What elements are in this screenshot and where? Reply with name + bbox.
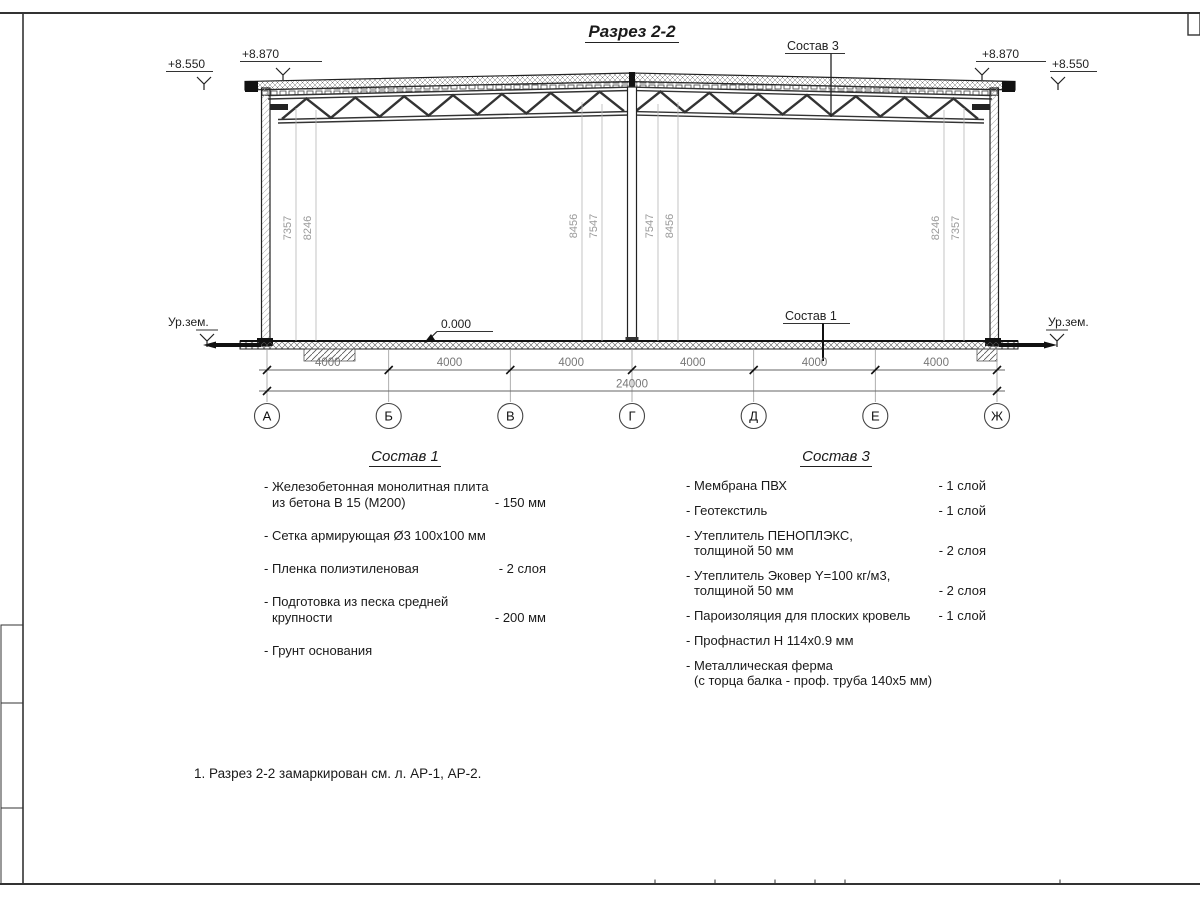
height-dim: 8456 <box>664 214 676 238</box>
bay-dim: 4000 <box>802 357 828 369</box>
wall-left <box>262 88 271 346</box>
list-item: - Утеплитель ПЕНОПЛЭКС,толщиной 50 мм - … <box>686 528 986 558</box>
height-dim: 7357 <box>282 216 294 240</box>
height-dim: 8456 <box>568 214 580 238</box>
bay-dim: 4000 <box>437 357 463 369</box>
footing-right <box>977 349 997 361</box>
height-dim: 8246 <box>302 216 314 240</box>
list-item: - Пленка полиэтиленовая - 2 слоя <box>264 561 546 577</box>
truss-web <box>282 92 624 119</box>
elevation-marker-icon <box>975 68 989 80</box>
truss-bearing-right <box>972 104 990 110</box>
list-item: - Грунт основания <box>264 643 546 659</box>
zero-level-label: 0.000 <box>441 317 471 331</box>
floor-slab <box>240 341 1018 349</box>
height-dim: 7357 <box>950 216 962 240</box>
list-item: - Геотекстиль - 1 слой <box>686 503 986 518</box>
list-item: - Металлическая ферма(с торца балка - пр… <box>686 658 986 688</box>
roof-edge-beam-right <box>1002 81 1015 92</box>
ridge-joint <box>629 72 635 87</box>
elevation-marker-icon <box>276 68 290 80</box>
sostav3-leader-label: Состав 3 <box>787 39 839 53</box>
axis-letter: Б <box>384 409 393 424</box>
list-item: - Подготовка из песка среднейкрупности -… <box>264 594 546 626</box>
height-dim: 8246 <box>930 216 942 240</box>
bay-dim: 4000 <box>923 357 949 369</box>
wall-right <box>990 88 999 346</box>
axis-letter: Д <box>749 409 758 424</box>
list-item: - Железобетонная монолитная плитаиз бето… <box>264 479 546 511</box>
height-dimension-labels: 7357 8246 8456 7547 7547 8456 8246 7357 <box>282 214 962 240</box>
sostav1-list: Состав 1 - Железобетонная монолитная пли… <box>264 449 546 676</box>
list-item: - Сетка армирующая Ø3 100х100 мм <box>264 528 546 544</box>
axis-letter: А <box>263 409 272 424</box>
sheet-frame <box>0 13 1200 884</box>
drawing-title-text: Разрез 2-2 <box>585 22 678 43</box>
axis-bubble: В <box>498 404 523 429</box>
elevation-label: +8.870 <box>982 47 1019 61</box>
structure <box>257 87 1001 346</box>
elevation-marker-icon <box>1051 77 1065 90</box>
truss-bearing-left <box>270 104 288 110</box>
elevation-label: +8.550 <box>168 57 205 71</box>
bay-dim: 4000 <box>558 357 584 369</box>
axis-bubble: А <box>255 404 280 429</box>
elevation-label: +8.550 <box>1052 57 1089 71</box>
ground-level-label: Ур.зем. <box>1048 315 1089 329</box>
corner-stamp-box <box>1188 13 1200 35</box>
axis-letter: Г <box>628 409 635 424</box>
list-item: - Пароизоляция для плоских кровель - 1 с… <box>686 608 986 623</box>
sheet-note: 1. Разрез 2-2 замаркирован см. л. АР-1, … <box>194 766 481 781</box>
elevation-marker-icon <box>197 77 211 90</box>
elevation-label: +8.870 <box>242 47 279 61</box>
axis-bubbles: А Б В Г Д Е Ж <box>255 404 1010 429</box>
axis-bubble: Е <box>863 404 888 429</box>
roof-edge-beam-left <box>245 81 258 92</box>
list-item: - Утеплитель Эковер Y=100 кг/м3,толщиной… <box>686 568 986 598</box>
axis-bubble: Д <box>741 404 766 429</box>
sostav1-heading: Состав 1 <box>264 449 546 465</box>
section-drawing: 7357 8246 8456 7547 7547 8456 8246 7357 … <box>0 0 1200 900</box>
total-dim: 24000 <box>616 379 648 391</box>
column-center <box>628 87 637 341</box>
axis-letter: Ж <box>991 409 1003 424</box>
height-dim: 7547 <box>644 214 656 238</box>
list-item: - Мембрана ПВХ - 1 слой <box>686 478 986 493</box>
sostav3-heading: Состав 3 <box>686 449 986 464</box>
bay-dim: 4000 <box>680 357 706 369</box>
ground-level-label: Ур.зем. <box>168 315 209 329</box>
sostav3-list: Состав 3 - Мембрана ПВХ - 1 слой - Геоте… <box>686 449 986 698</box>
sostav1-leader-label: Состав 1 <box>785 309 837 323</box>
axis-bubble: Б <box>376 404 401 429</box>
list-item: - Профнастил Н 114х0.9 мм <box>686 633 986 648</box>
axis-bubble: Ж <box>985 404 1010 429</box>
height-dim: 7547 <box>588 214 600 238</box>
dimension-chain: 4000 4000 4000 4000 4000 4000 24000 <box>259 349 1005 402</box>
axis-letter: В <box>506 409 515 424</box>
drawing-sheet: 7357 8246 8456 7547 7547 8456 8246 7357 … <box>0 0 1200 900</box>
drawing-title: Разрез 2-2 <box>542 22 722 42</box>
axis-bubble: Г <box>620 404 645 429</box>
axis-letter: Е <box>871 409 880 424</box>
bay-dim: 4000 <box>315 357 341 369</box>
